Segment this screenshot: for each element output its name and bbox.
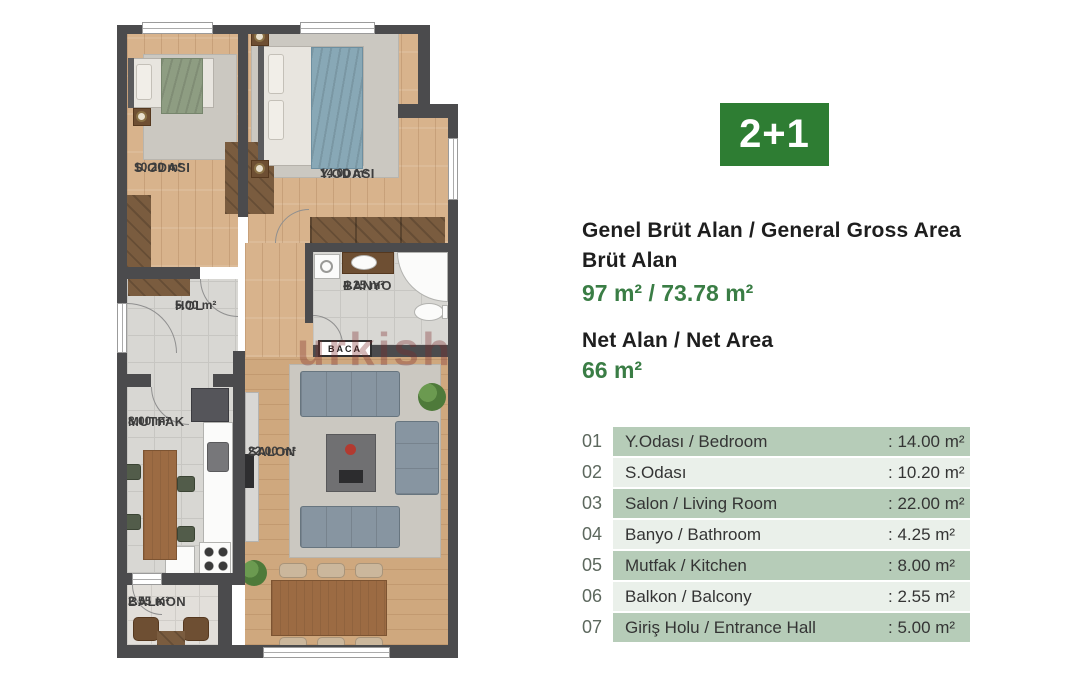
watermark: urkish <box>297 322 453 376</box>
wall-segment <box>117 374 151 387</box>
sofa <box>300 506 400 548</box>
table-decor <box>345 444 356 455</box>
window <box>300 22 375 34</box>
row-number: 05 <box>582 551 610 580</box>
room-area: 22.00 m² <box>248 444 296 459</box>
room-area: 2.55 m² <box>128 594 169 609</box>
kitchen-chair <box>177 526 195 542</box>
pillow <box>268 100 284 140</box>
row-bar: Y.Odası / Bedroom : 14.00 m² <box>613 427 970 456</box>
room-name-cell: Giriş Holu / Entrance Hall <box>625 613 816 642</box>
row-bar: Balkon / Balcony : 2.55 m² <box>613 582 970 611</box>
dining-chair <box>279 563 307 578</box>
balcony-chair <box>183 617 209 641</box>
row-bar: S.Odası : 10.20 m² <box>613 458 970 487</box>
wall-segment <box>233 351 245 585</box>
room-area: 8.00 m² <box>128 414 169 429</box>
room-area-cell: : 10.20 m² <box>888 458 965 487</box>
wall-segment <box>218 585 232 645</box>
room-name-cell: S.Odası <box>625 458 686 487</box>
room-area: 4.25 m² <box>343 278 384 293</box>
refrigerator <box>191 388 229 422</box>
row-bar: Mutfak / Kitchen : 8.00 m² <box>613 551 970 580</box>
shoe-cabinet <box>128 279 190 296</box>
floor-plan-image: S.ODASI 10.20 m² Y.ODASI 14.00 m² BANYO … <box>117 14 458 658</box>
pillow <box>268 54 284 94</box>
room-area-cell: : 14.00 m² <box>888 427 965 456</box>
room-area-cell: : 8.00 m² <box>888 551 955 580</box>
table-row: 05 Mutfak / Kitchen : 8.00 m² <box>582 551 970 580</box>
single-bed-headboard <box>128 58 134 108</box>
row-number: 04 <box>582 520 610 549</box>
net-area-value: 66 m² <box>582 357 642 384</box>
room-area: 10.20 m² <box>134 160 182 175</box>
table-row: 02 S.Odası : 10.20 m² <box>582 458 970 487</box>
room-area-cell: : 5.00 m² <box>888 613 955 642</box>
window <box>142 22 213 34</box>
sink <box>351 255 377 270</box>
dining-chair <box>317 563 345 578</box>
table-row: 04 Banyo / Bathroom : 4.25 m² <box>582 520 970 549</box>
stove <box>199 542 231 574</box>
balcony-table <box>157 631 185 646</box>
room-name-cell: Y.Odası / Bedroom <box>625 427 767 456</box>
built-in-wardrobe <box>310 217 445 243</box>
room-list-table: 01 Y.Odası / Bedroom : 14.00 m² 02 S.Oda… <box>582 427 970 644</box>
desk <box>225 142 238 214</box>
plant <box>418 383 446 411</box>
row-number: 03 <box>582 489 610 518</box>
balcony-door <box>132 573 162 585</box>
room-area-cell: : 2.55 m² <box>888 582 955 611</box>
wall-segment <box>238 25 248 217</box>
row-bar: Salon / Living Room : 22.00 m² <box>613 489 970 518</box>
gross-area-title: Genel Brüt Alan / General Gross Area <box>582 219 961 243</box>
wardrobe <box>127 195 151 268</box>
coffee-table <box>326 434 376 492</box>
room-name-cell: Balkon / Balcony <box>625 582 752 611</box>
table-row: 03 Salon / Living Room : 22.00 m² <box>582 489 970 518</box>
gross-area-value: 97 m² / 73.78 m² <box>582 280 753 307</box>
lamp <box>136 111 147 122</box>
entrance-door <box>117 303 127 353</box>
room-count-badge: 2+1 <box>720 103 829 166</box>
net-area-title: Net Alan / Net Area <box>582 329 773 353</box>
row-number: 06 <box>582 582 610 611</box>
loveseat <box>395 421 439 495</box>
table-row: 07 Giriş Holu / Entrance Hall : 5.00 m² <box>582 613 970 642</box>
pillow <box>136 64 152 100</box>
double-bed-headboard <box>258 46 264 166</box>
green-blanket <box>161 58 203 114</box>
kitchen-sink <box>207 442 229 472</box>
row-bar: Banyo / Bathroom : 4.25 m² <box>613 520 970 549</box>
room-name-cell: Banyo / Bathroom <box>625 520 761 549</box>
sofa <box>300 371 400 417</box>
row-bar: Giriş Holu / Entrance Hall : 5.00 m² <box>613 613 970 642</box>
dining-table <box>271 580 387 636</box>
dining-chair <box>355 563 383 578</box>
kitchen-table <box>143 450 177 560</box>
room-name-cell: Salon / Living Room <box>625 489 777 518</box>
blue-blanket <box>311 47 363 169</box>
room-area: 5.00 m² <box>175 298 216 313</box>
row-number: 02 <box>582 458 610 487</box>
floor-plan-flyer: S.ODASI 10.20 m² Y.ODASI 14.00 m² BANYO … <box>0 0 1080 697</box>
wall-segment <box>418 25 430 114</box>
washer-drum <box>320 260 333 273</box>
tv <box>245 454 254 488</box>
wall-segment <box>305 252 313 323</box>
room-area-cell: : 22.00 m² <box>888 489 965 518</box>
kitchen-chair <box>177 476 195 492</box>
wall-segment <box>305 243 458 252</box>
balcony-railing-window <box>263 647 390 658</box>
wall-segment <box>213 374 233 387</box>
lamp <box>254 163 265 174</box>
window <box>448 138 458 200</box>
balcony-chair <box>133 617 159 641</box>
room-area-cell: : 4.25 m² <box>888 520 955 549</box>
row-number: 07 <box>582 613 610 642</box>
table-tray <box>339 470 363 483</box>
row-number: 01 <box>582 427 610 456</box>
wall-segment <box>117 267 200 279</box>
table-row: 01 Y.Odası / Bedroom : 14.00 m² <box>582 427 970 456</box>
table-row: 06 Balkon / Balcony : 2.55 m² <box>582 582 970 611</box>
room-name-cell: Mutfak / Kitchen <box>625 551 747 580</box>
gross-area-subtitle: Brüt Alan <box>582 249 678 273</box>
room-area: 14.00 m² <box>320 166 368 181</box>
toilet <box>414 303 444 321</box>
